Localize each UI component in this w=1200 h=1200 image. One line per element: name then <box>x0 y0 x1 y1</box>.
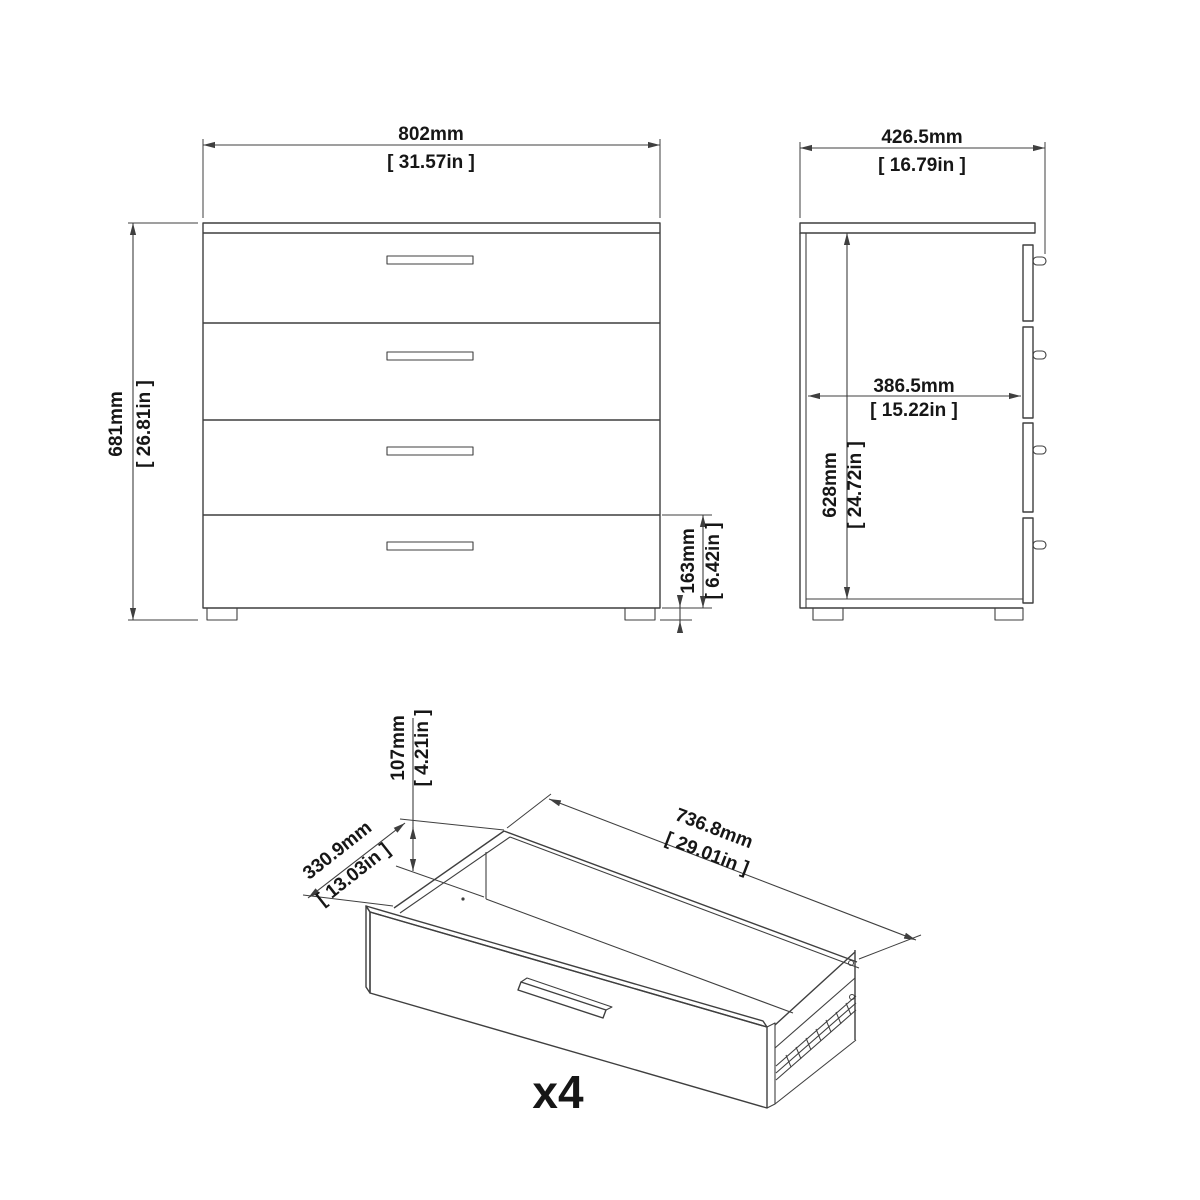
side-left-foot <box>813 608 843 620</box>
drawer-height-mm-label: 107mm <box>388 715 409 781</box>
handle-profile <box>1033 257 1046 265</box>
front-view: 802mm [ 31.57in ] 681mm [ 26.81in ] 163m… <box>106 124 724 632</box>
drawer-bottom-screw-mark <box>461 897 464 900</box>
handle-profile <box>1033 446 1046 454</box>
front-left-foot <box>207 608 237 620</box>
side-depth-in-label: [ 16.79in ] <box>878 155 966 176</box>
handle-profile <box>1033 351 1046 359</box>
drawer-slide-rail <box>776 996 856 1080</box>
front-drawer-height-in-label: [ 6.42in ] <box>703 522 724 599</box>
drawer-front-panel-right-edge <box>767 1023 775 1108</box>
front-drawer-handles <box>387 256 473 550</box>
extension-line <box>396 866 484 897</box>
drawer-handle <box>387 256 473 264</box>
side-handle-profiles <box>1033 257 1046 549</box>
side-view: 426.5mm [ 16.79in ] 386.5mm [ 15.22in ] … <box>800 127 1046 620</box>
drawer-handle <box>387 352 473 360</box>
dimension-drawing: 802mm [ 31.57in ] 681mm [ 26.81in ] 163m… <box>0 0 1200 1200</box>
drawer-isometric-view: 736.8mm [ 29.01in ] 330.9mm [ 13.03in ] … <box>299 709 921 1118</box>
side-drawer-front <box>1023 518 1033 603</box>
front-height-mm-label: 681mm <box>106 391 127 457</box>
front-drawer-height-mm-label: 163mm <box>678 528 699 594</box>
drawer-height-in-label: [ 4.21in ] <box>412 709 433 786</box>
front-height-in-label: [ 26.81in ] <box>134 380 155 468</box>
side-drawer-front <box>1023 245 1033 321</box>
rail-screw <box>850 995 855 1000</box>
front-width-mm-label: 802mm <box>398 124 464 145</box>
side-depth-mm-label: 426.5mm <box>881 127 962 148</box>
drawer-handle <box>387 542 473 550</box>
side-internal-depth-mm-label: 386.5mm <box>873 376 954 397</box>
drawer-right-bottom-edge <box>775 1040 856 1104</box>
side-internal-height-mm-label: 628mm <box>820 452 841 518</box>
extension-line <box>203 139 660 218</box>
drawer-back-wall-inner-top <box>510 837 859 968</box>
handle-profile <box>1033 541 1046 549</box>
side-right-foot <box>995 608 1023 620</box>
side-internal-height-in-label: [ 24.72in ] <box>845 441 866 529</box>
drawer-handle <box>387 447 473 455</box>
drawer-left-wall-outer-top <box>394 831 504 908</box>
side-drawer-front <box>1023 327 1033 418</box>
front-width-in-label: [ 31.57in ] <box>387 152 475 173</box>
side-top-panel <box>800 223 1035 233</box>
drawer-handle-top <box>521 978 612 1010</box>
drawer-quantity-label: x4 <box>532 1066 584 1118</box>
front-right-foot <box>625 608 655 620</box>
side-drawer-front <box>1023 423 1033 512</box>
side-drawer-fronts <box>1023 245 1033 603</box>
drawer-front-panel-left-edge <box>366 906 370 993</box>
drawer-bottom-back-edge <box>486 899 793 1013</box>
drawer-slide-rail-hatching <box>786 1003 851 1067</box>
side-internal-depth-in-label: [ 15.22in ] <box>870 400 958 421</box>
